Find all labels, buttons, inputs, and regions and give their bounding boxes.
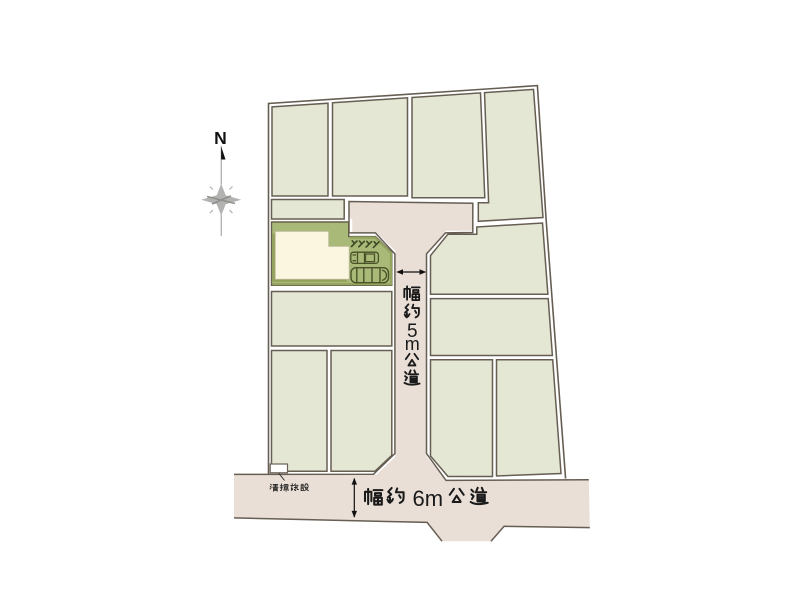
svg-text:m: m (405, 334, 420, 354)
svg-text:N: N (214, 128, 227, 148)
svg-text:6m: 6m (413, 486, 444, 511)
